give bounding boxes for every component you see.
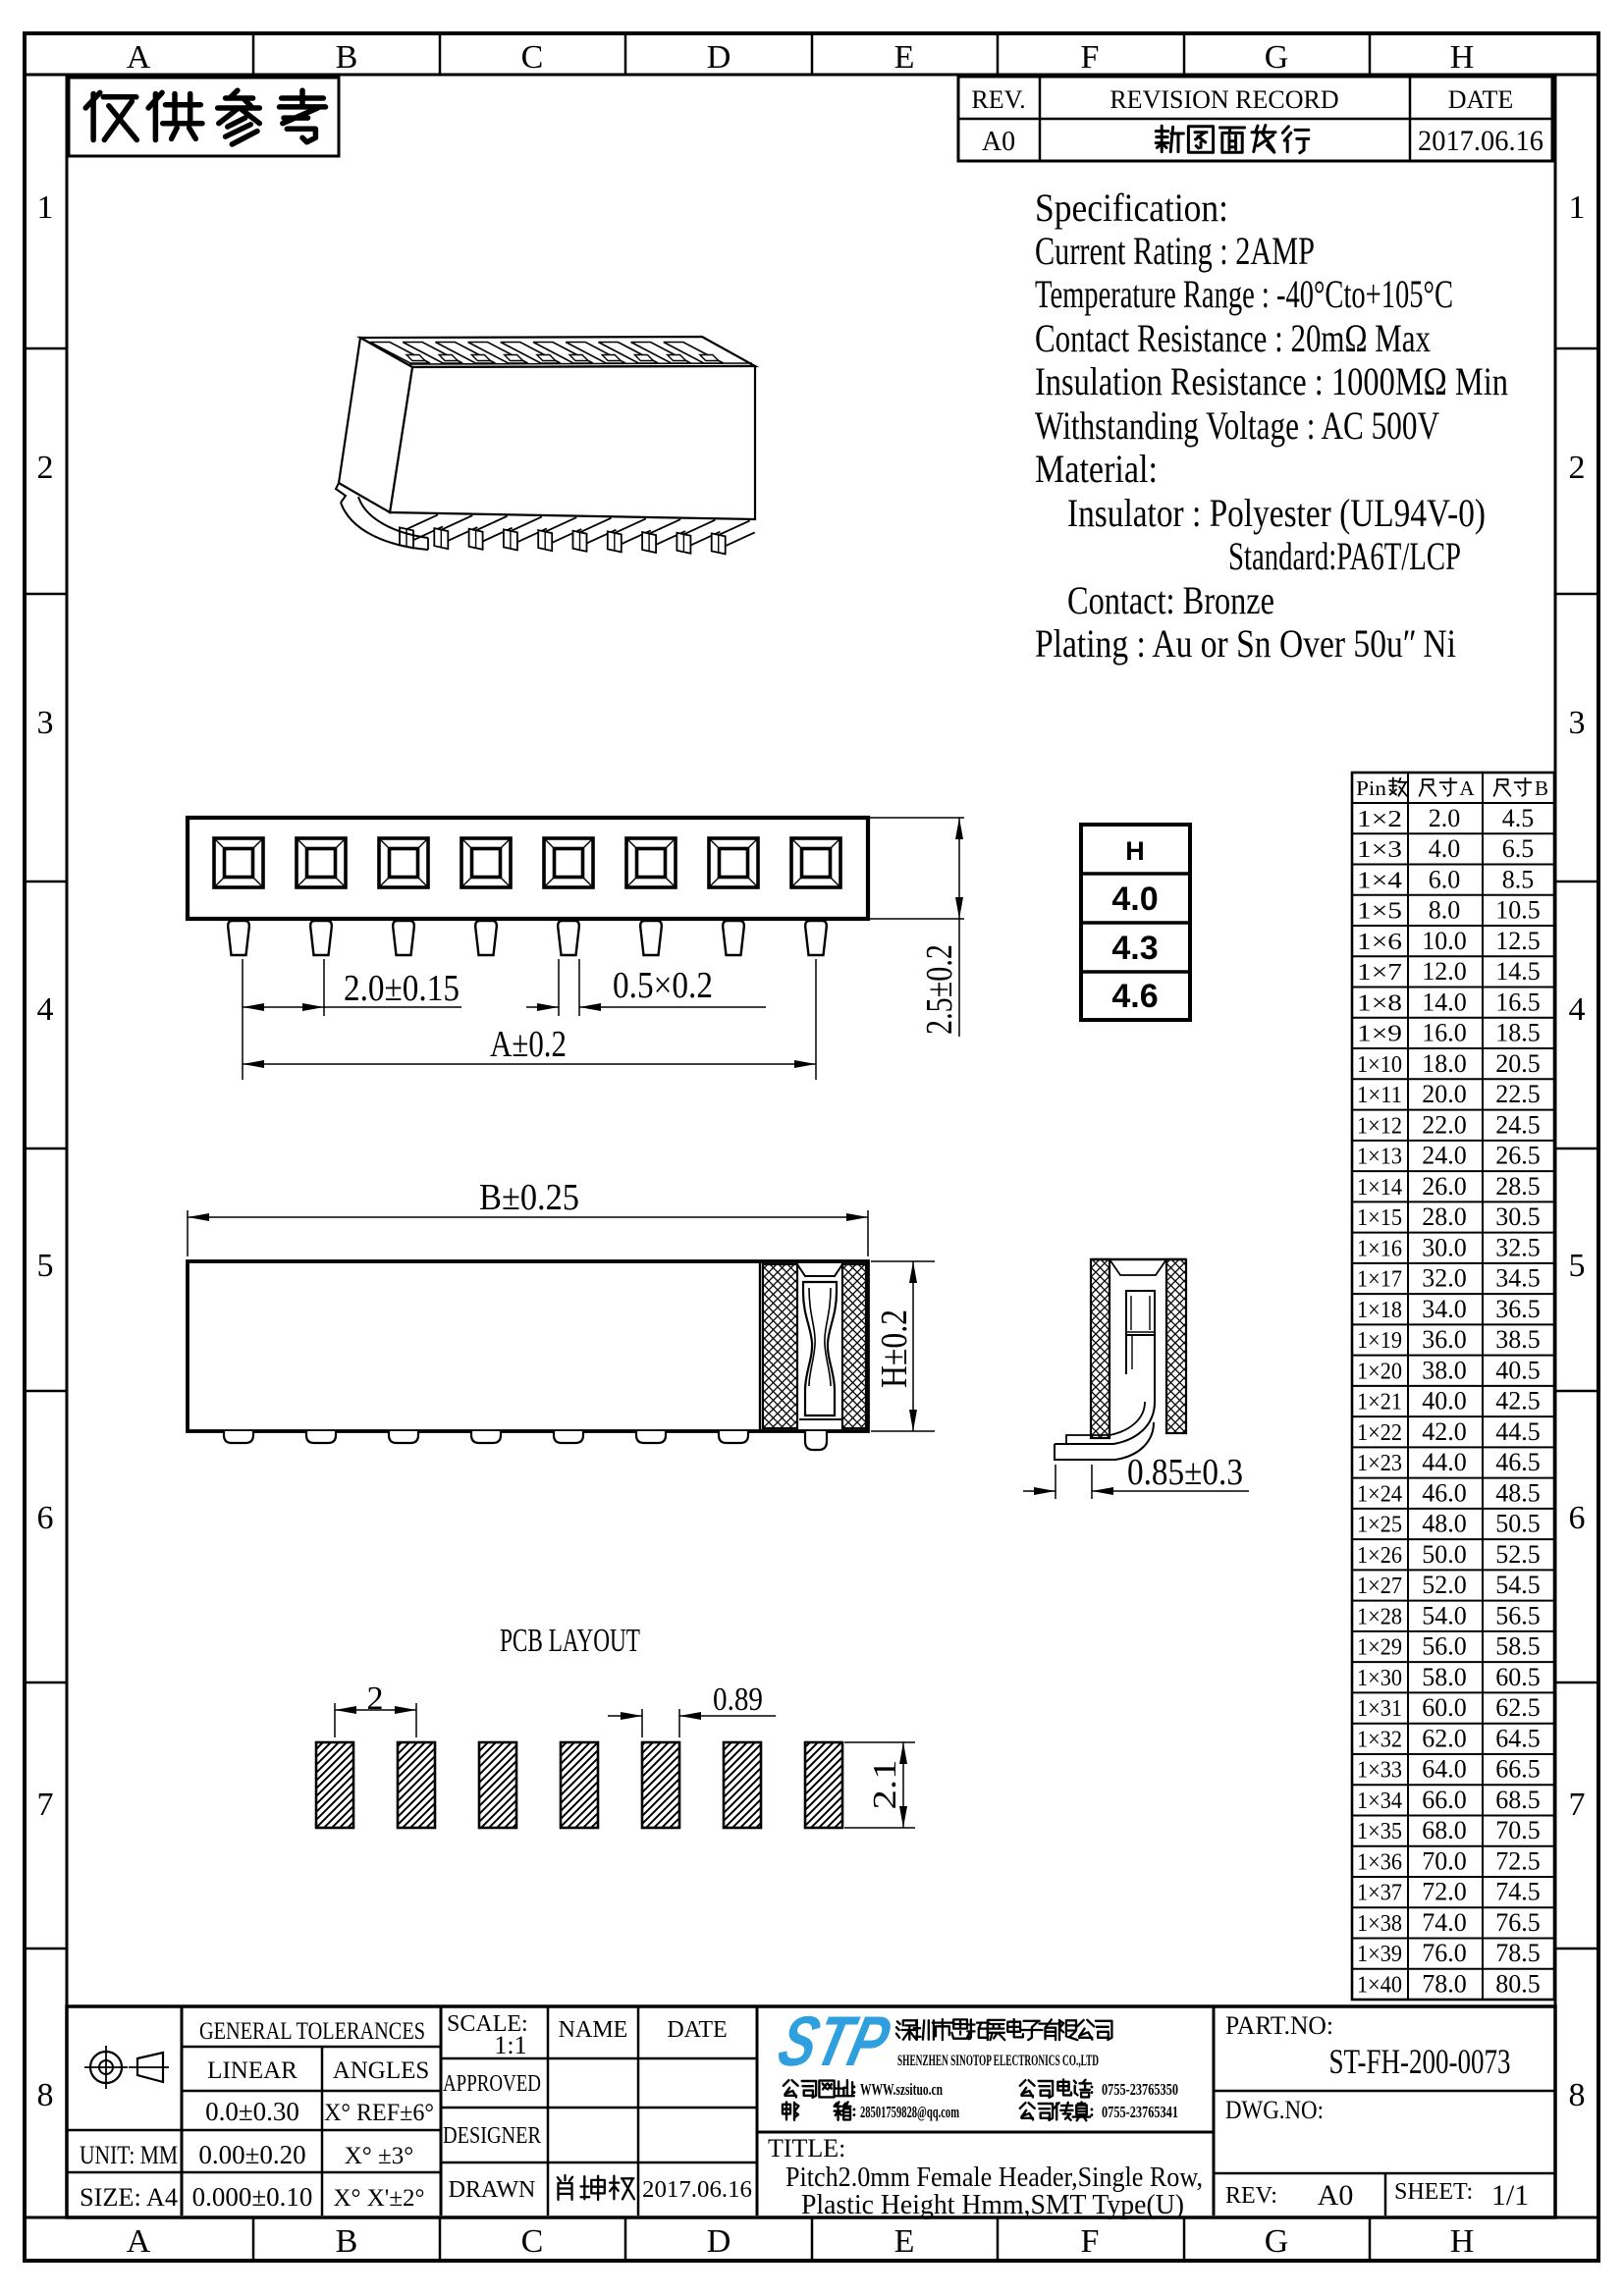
svg-text:Pin: Pin xyxy=(1356,776,1387,800)
svg-text:68.5: 68.5 xyxy=(1495,1786,1541,1814)
svg-text:4.0: 4.0 xyxy=(1429,834,1461,863)
svg-text:1×34: 1×34 xyxy=(1357,1789,1402,1814)
svg-text:30.5: 30.5 xyxy=(1495,1202,1541,1231)
svg-text:1×10: 1×10 xyxy=(1357,1052,1402,1078)
svg-text:Standard:PA6T/LCP: Standard:PA6T/LCP xyxy=(1228,534,1461,578)
svg-text:A0: A0 xyxy=(982,127,1015,157)
svg-text:4.3: 4.3 xyxy=(1111,930,1158,967)
svg-text:72.5: 72.5 xyxy=(1495,1846,1541,1875)
svg-text:4: 4 xyxy=(1569,991,1586,1028)
svg-text:Temperature Range : -40°Cto+10: Temperature Range : -40°Cto+105°C xyxy=(1035,272,1453,316)
svg-text:18.5: 18.5 xyxy=(1495,1019,1541,1047)
svg-text:28.0: 28.0 xyxy=(1422,1202,1467,1231)
svg-text:REVISION RECORD: REVISION RECORD xyxy=(1110,85,1338,114)
svg-text:34.0: 34.0 xyxy=(1422,1295,1467,1323)
svg-text:62.5: 62.5 xyxy=(1495,1693,1541,1722)
svg-text:1×40: 1×40 xyxy=(1357,1973,1402,1999)
svg-text:1×16: 1×16 xyxy=(1357,1236,1402,1261)
svg-text:7: 7 xyxy=(1569,1787,1586,1823)
svg-text:Specification:: Specification: xyxy=(1035,186,1228,230)
svg-text:DATE: DATE xyxy=(667,2017,727,2043)
svg-text:72.0: 72.0 xyxy=(1422,1878,1467,1906)
svg-text:56.5: 56.5 xyxy=(1495,1601,1541,1629)
svg-text:20.0: 20.0 xyxy=(1422,1080,1467,1108)
svg-text:1×19: 1×19 xyxy=(1357,1328,1402,1354)
svg-text:70.0: 70.0 xyxy=(1422,1846,1467,1875)
svg-text:0.0±0.30: 0.0±0.30 xyxy=(205,2097,299,2126)
svg-text:1×8: 1×8 xyxy=(1357,990,1402,1016)
svg-text:1×26: 1×26 xyxy=(1357,1543,1402,1569)
svg-text:34.5: 34.5 xyxy=(1495,1264,1541,1293)
svg-text:48.0: 48.0 xyxy=(1422,1510,1467,1538)
svg-text:ST-FH-200-0073: ST-FH-200-0073 xyxy=(1329,2042,1511,2081)
svg-text:2.1: 2.1 xyxy=(867,1760,903,1810)
svg-text:16.0: 16.0 xyxy=(1422,1019,1467,1047)
svg-text:3: 3 xyxy=(37,705,54,741)
svg-text:1×11: 1×11 xyxy=(1357,1083,1402,1108)
svg-text:D: D xyxy=(707,2223,731,2260)
svg-text:1×24: 1×24 xyxy=(1357,1481,1402,1507)
svg-text:1/1: 1/1 xyxy=(1491,2179,1529,2212)
svg-text:1×6: 1×6 xyxy=(1357,930,1402,955)
svg-text:X° X'±2°: X° X'±2° xyxy=(333,2185,424,2212)
svg-text:1×36: 1×36 xyxy=(1357,1849,1402,1875)
svg-text:4: 4 xyxy=(37,991,54,1028)
svg-text:TITLE:: TITLE: xyxy=(768,2134,845,2163)
svg-text:PCB LAYOUT: PCB LAYOUT xyxy=(500,1623,640,1659)
svg-text:1×37: 1×37 xyxy=(1357,1881,1402,1906)
svg-text:D: D xyxy=(707,39,731,76)
svg-text:76.5: 76.5 xyxy=(1495,1908,1541,1937)
svg-text:Plastic Height Hmm,SMT Type(U): Plastic Height Hmm,SMT Type(U) xyxy=(801,2190,1184,2220)
svg-text:3: 3 xyxy=(1569,705,1586,741)
svg-text:X° REF±6°: X° REF±6° xyxy=(324,2100,434,2126)
svg-text:Material:: Material: xyxy=(1035,447,1158,491)
svg-text:2.0: 2.0 xyxy=(1429,804,1461,832)
svg-text:32.5: 32.5 xyxy=(1495,1233,1541,1261)
svg-text:2017.06.16: 2017.06.16 xyxy=(1418,125,1543,157)
svg-text:1×9: 1×9 xyxy=(1357,1022,1402,1047)
svg-text:62.0: 62.0 xyxy=(1422,1724,1467,1752)
svg-text:NAME: NAME xyxy=(559,2017,628,2043)
svg-text:76.0: 76.0 xyxy=(1422,1939,1467,1967)
svg-text:24.5: 24.5 xyxy=(1495,1110,1541,1139)
svg-text:4.6: 4.6 xyxy=(1111,978,1158,1015)
svg-text:A±0.2: A±0.2 xyxy=(490,1024,567,1065)
svg-text:12.5: 12.5 xyxy=(1495,927,1541,955)
svg-text:8.0: 8.0 xyxy=(1429,896,1461,925)
svg-text:B: B xyxy=(1535,776,1548,800)
svg-text:14.5: 14.5 xyxy=(1495,957,1541,986)
svg-text:74.5: 74.5 xyxy=(1495,1878,1541,1906)
svg-text:REV.: REV. xyxy=(971,85,1025,114)
svg-text:1×3: 1×3 xyxy=(1357,837,1402,863)
svg-text:16.5: 16.5 xyxy=(1495,988,1541,1016)
svg-text:24.0: 24.0 xyxy=(1422,1142,1467,1170)
svg-text:1×28: 1×28 xyxy=(1357,1604,1402,1629)
svg-text:1×35: 1×35 xyxy=(1357,1819,1402,1844)
svg-text:C: C xyxy=(521,39,544,76)
svg-text:2017.06.16: 2017.06.16 xyxy=(642,2177,752,2203)
svg-text::: : xyxy=(1089,2101,1095,2120)
svg-text:0755-23765350: 0755-23765350 xyxy=(1102,2080,1178,2099)
svg-text:50.5: 50.5 xyxy=(1495,1510,1541,1538)
svg-text:6: 6 xyxy=(1569,1500,1586,1536)
svg-text:42.0: 42.0 xyxy=(1422,1417,1467,1446)
svg-text:5: 5 xyxy=(1569,1248,1586,1284)
svg-text:H: H xyxy=(1450,2223,1475,2260)
svg-text:60.0: 60.0 xyxy=(1422,1693,1467,1722)
svg-text:APPROVED: APPROVED xyxy=(443,2071,541,2097)
svg-text:Insulator : Polyester (UL94V-0: Insulator : Polyester (UL94V-0) xyxy=(1067,491,1486,535)
svg-text:52.0: 52.0 xyxy=(1422,1571,1467,1599)
svg-text:46.0: 46.0 xyxy=(1422,1478,1467,1507)
svg-text:UNIT: MM: UNIT: MM xyxy=(80,2141,178,2169)
svg-text:6: 6 xyxy=(37,1500,54,1536)
svg-text:1×15: 1×15 xyxy=(1357,1205,1402,1231)
svg-text:WWW.szsituo.cn: WWW.szsituo.cn xyxy=(860,2080,943,2099)
svg-text:78.0: 78.0 xyxy=(1422,1970,1467,1999)
svg-text:1:1: 1:1 xyxy=(494,2031,526,2059)
svg-text:Withstanding Voltage : AC 500V: Withstanding Voltage : AC 500V xyxy=(1035,403,1439,448)
svg-text:28501759828@qq.com: 28501759828@qq.com xyxy=(860,2103,959,2121)
svg-text:Contact Resistance : 20mΩ Max: Contact Resistance : 20mΩ Max xyxy=(1035,316,1431,360)
svg-text:H: H xyxy=(1125,836,1145,866)
svg-text:X° ±3°: X° ±3° xyxy=(345,2143,414,2169)
svg-text:1: 1 xyxy=(37,189,54,226)
svg-text:78.5: 78.5 xyxy=(1495,1939,1541,1967)
svg-text:2: 2 xyxy=(37,450,54,486)
svg-text:1×29: 1×29 xyxy=(1357,1635,1402,1661)
svg-text:C: C xyxy=(521,2223,544,2260)
svg-text:1×13: 1×13 xyxy=(1357,1145,1402,1170)
svg-text:DWG.NO:: DWG.NO: xyxy=(1225,2096,1324,2124)
svg-text:74.0: 74.0 xyxy=(1422,1908,1467,1937)
svg-text:48.5: 48.5 xyxy=(1495,1478,1541,1507)
svg-text:0.000±0.10: 0.000±0.10 xyxy=(192,2182,313,2212)
svg-text:44.5: 44.5 xyxy=(1495,1417,1541,1446)
svg-text:F: F xyxy=(1081,2223,1100,2260)
svg-text:22.0: 22.0 xyxy=(1422,1110,1467,1139)
svg-text:50.0: 50.0 xyxy=(1422,1540,1467,1569)
svg-text:1×39: 1×39 xyxy=(1357,1942,1402,1967)
svg-text:40.0: 40.0 xyxy=(1422,1387,1467,1415)
svg-text:LINEAR: LINEAR xyxy=(207,2057,298,2084)
svg-text:DRAWN: DRAWN xyxy=(449,2177,536,2203)
svg-text:4.0: 4.0 xyxy=(1111,881,1158,918)
svg-text:1×25: 1×25 xyxy=(1357,1513,1402,1538)
svg-text:REV:: REV: xyxy=(1225,2183,1277,2209)
svg-text:26.5: 26.5 xyxy=(1495,1142,1541,1170)
svg-text:G: G xyxy=(1265,39,1289,76)
svg-text:1×22: 1×22 xyxy=(1357,1420,1402,1446)
svg-text:A: A xyxy=(127,39,151,76)
svg-text:B: B xyxy=(336,39,358,76)
svg-text:1×23: 1×23 xyxy=(1357,1451,1402,1476)
svg-text:2: 2 xyxy=(367,1681,384,1717)
svg-text:7: 7 xyxy=(37,1787,54,1823)
svg-text:38.0: 38.0 xyxy=(1422,1356,1467,1384)
svg-text:18.0: 18.0 xyxy=(1422,1049,1467,1078)
svg-text:E: E xyxy=(894,39,915,76)
svg-text:6.0: 6.0 xyxy=(1429,865,1461,893)
svg-text:Pitch2.0mm Female Header,Singl: Pitch2.0mm Female Header,Single Row, xyxy=(785,2163,1203,2193)
svg-text:B: B xyxy=(336,2223,358,2260)
svg-text:54.0: 54.0 xyxy=(1422,1601,1467,1629)
svg-text:1: 1 xyxy=(1569,189,1586,226)
svg-text:1×33: 1×33 xyxy=(1357,1758,1402,1784)
svg-text:1×18: 1×18 xyxy=(1357,1298,1402,1323)
svg-text:66.5: 66.5 xyxy=(1495,1755,1541,1784)
svg-text:26.0: 26.0 xyxy=(1422,1172,1467,1201)
svg-text:36.5: 36.5 xyxy=(1495,1295,1541,1323)
svg-text:1×2: 1×2 xyxy=(1357,807,1402,832)
svg-text:66.0: 66.0 xyxy=(1422,1786,1467,1814)
svg-text:68.0: 68.0 xyxy=(1422,1816,1467,1844)
svg-text:G: G xyxy=(1265,2223,1289,2260)
svg-text:56.0: 56.0 xyxy=(1422,1632,1467,1661)
svg-text:1×17: 1×17 xyxy=(1357,1267,1402,1293)
svg-text:1×12: 1×12 xyxy=(1357,1113,1402,1139)
svg-text:54.5: 54.5 xyxy=(1495,1571,1541,1599)
svg-text:STP: STP xyxy=(771,2002,896,2081)
svg-text:H: H xyxy=(1450,39,1475,76)
svg-text:1×20: 1×20 xyxy=(1357,1359,1402,1384)
svg-text:A: A xyxy=(1459,776,1475,800)
svg-text:64.5: 64.5 xyxy=(1495,1724,1541,1752)
svg-text:A: A xyxy=(127,2223,151,2260)
svg-text:Contact: Bronze: Contact: Bronze xyxy=(1067,578,1274,622)
svg-text:2.0±0.15: 2.0±0.15 xyxy=(344,968,460,1009)
svg-text:38.5: 38.5 xyxy=(1495,1325,1541,1354)
svg-text:1×32: 1×32 xyxy=(1357,1727,1402,1752)
svg-text:H±0.2: H±0.2 xyxy=(874,1309,915,1388)
svg-text::: : xyxy=(851,2078,857,2098)
svg-text:B±0.25: B±0.25 xyxy=(479,1177,579,1218)
svg-text::: : xyxy=(851,2101,857,2120)
svg-text:1×14: 1×14 xyxy=(1357,1175,1402,1201)
svg-text:GENERAL TOLERANCES: GENERAL TOLERANCES xyxy=(199,2018,425,2045)
svg-text:30.0: 30.0 xyxy=(1422,1233,1467,1261)
svg-text:42.5: 42.5 xyxy=(1495,1387,1541,1415)
svg-text::: : xyxy=(1089,2078,1095,2098)
svg-text:20.5: 20.5 xyxy=(1495,1049,1541,1078)
svg-text:Insulation Resistance : 1000MΩ: Insulation Resistance : 1000MΩ Min xyxy=(1035,359,1508,403)
svg-text:8: 8 xyxy=(37,2077,54,2113)
svg-text:1×21: 1×21 xyxy=(1357,1390,1402,1415)
svg-text:12.0: 12.0 xyxy=(1422,957,1467,986)
svg-text:60.5: 60.5 xyxy=(1495,1663,1541,1691)
svg-text:32.0: 32.0 xyxy=(1422,1264,1467,1293)
svg-text:40.5: 40.5 xyxy=(1495,1356,1541,1384)
svg-text:58.0: 58.0 xyxy=(1422,1663,1467,1691)
svg-text:ANGLES: ANGLES xyxy=(333,2057,430,2084)
svg-text:Current Rating : 2AMP: Current Rating : 2AMP xyxy=(1035,229,1315,273)
svg-text:46.5: 46.5 xyxy=(1495,1448,1541,1476)
svg-text:SHENZHEN SINOTOP ELECTRONICS C: SHENZHEN SINOTOP ELECTRONICS CO.,LTD xyxy=(897,2053,1099,2069)
svg-text:1×4: 1×4 xyxy=(1357,868,1402,893)
svg-text:5: 5 xyxy=(37,1248,54,1284)
svg-text:70.5: 70.5 xyxy=(1495,1816,1541,1844)
svg-text:1×38: 1×38 xyxy=(1357,1911,1402,1937)
svg-text:4.5: 4.5 xyxy=(1502,804,1535,832)
svg-text:A0: A0 xyxy=(1318,2179,1354,2212)
svg-text:8: 8 xyxy=(1569,2077,1586,2113)
svg-text:10.5: 10.5 xyxy=(1495,896,1541,925)
svg-text:F: F xyxy=(1081,39,1100,76)
svg-text:80.5: 80.5 xyxy=(1495,1970,1541,1999)
svg-text:2.5±0.2: 2.5±0.2 xyxy=(919,944,960,1035)
svg-text:0.00±0.20: 0.00±0.20 xyxy=(198,2140,305,2169)
svg-text:SIZE: A4: SIZE: A4 xyxy=(80,2183,178,2212)
svg-text:1×7: 1×7 xyxy=(1357,960,1402,986)
svg-text:8.5: 8.5 xyxy=(1502,865,1535,893)
svg-text:44.0: 44.0 xyxy=(1422,1448,1467,1476)
svg-text:10.0: 10.0 xyxy=(1422,927,1467,955)
svg-text:1×31: 1×31 xyxy=(1357,1696,1402,1722)
svg-text:64.0: 64.0 xyxy=(1422,1755,1467,1784)
svg-text:22.5: 22.5 xyxy=(1495,1080,1541,1108)
svg-text:6.5: 6.5 xyxy=(1502,834,1535,863)
svg-text:0755-23765341: 0755-23765341 xyxy=(1102,2103,1178,2121)
svg-text:E: E xyxy=(894,2223,915,2260)
svg-text:1×5: 1×5 xyxy=(1357,899,1402,925)
svg-text:58.5: 58.5 xyxy=(1495,1632,1541,1661)
svg-text:0.85±0.3: 0.85±0.3 xyxy=(1127,1452,1243,1493)
svg-text:SHEET:: SHEET: xyxy=(1394,2179,1473,2205)
svg-text:0.89: 0.89 xyxy=(713,1682,763,1718)
svg-text:52.5: 52.5 xyxy=(1495,1540,1541,1569)
svg-text:28.5: 28.5 xyxy=(1495,1172,1541,1201)
svg-text:DESIGNER: DESIGNER xyxy=(443,2123,541,2149)
svg-text:36.0: 36.0 xyxy=(1422,1325,1467,1354)
svg-text:1×27: 1×27 xyxy=(1357,1574,1402,1599)
svg-text:1×30: 1×30 xyxy=(1357,1666,1402,1691)
svg-text:DATE: DATE xyxy=(1448,85,1513,114)
svg-text:14.0: 14.0 xyxy=(1422,988,1467,1016)
svg-text:PART.NO:: PART.NO: xyxy=(1225,2011,1333,2040)
svg-text:0.5×0.2: 0.5×0.2 xyxy=(613,965,713,1006)
svg-text:Plating : Au or Sn Over 50uʺ N: Plating : Au or Sn Over 50uʺ Ni xyxy=(1035,621,1456,666)
svg-text:2: 2 xyxy=(1569,450,1586,486)
